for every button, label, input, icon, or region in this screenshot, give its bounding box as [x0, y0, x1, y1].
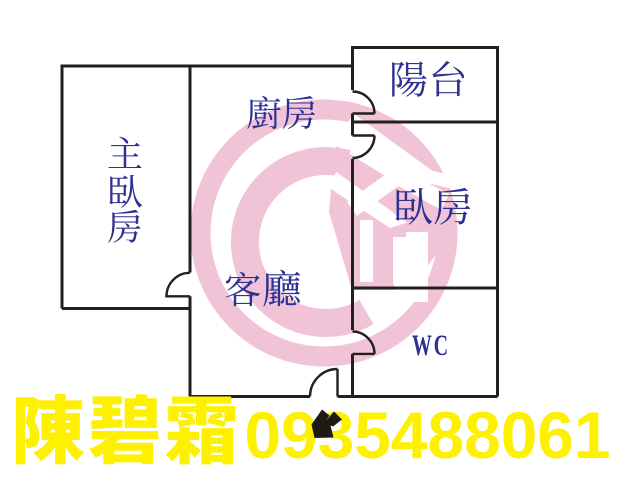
svg-text:WC: WC [412, 329, 450, 362]
svg-text:0935488061: 0935488061 [245, 398, 611, 472]
